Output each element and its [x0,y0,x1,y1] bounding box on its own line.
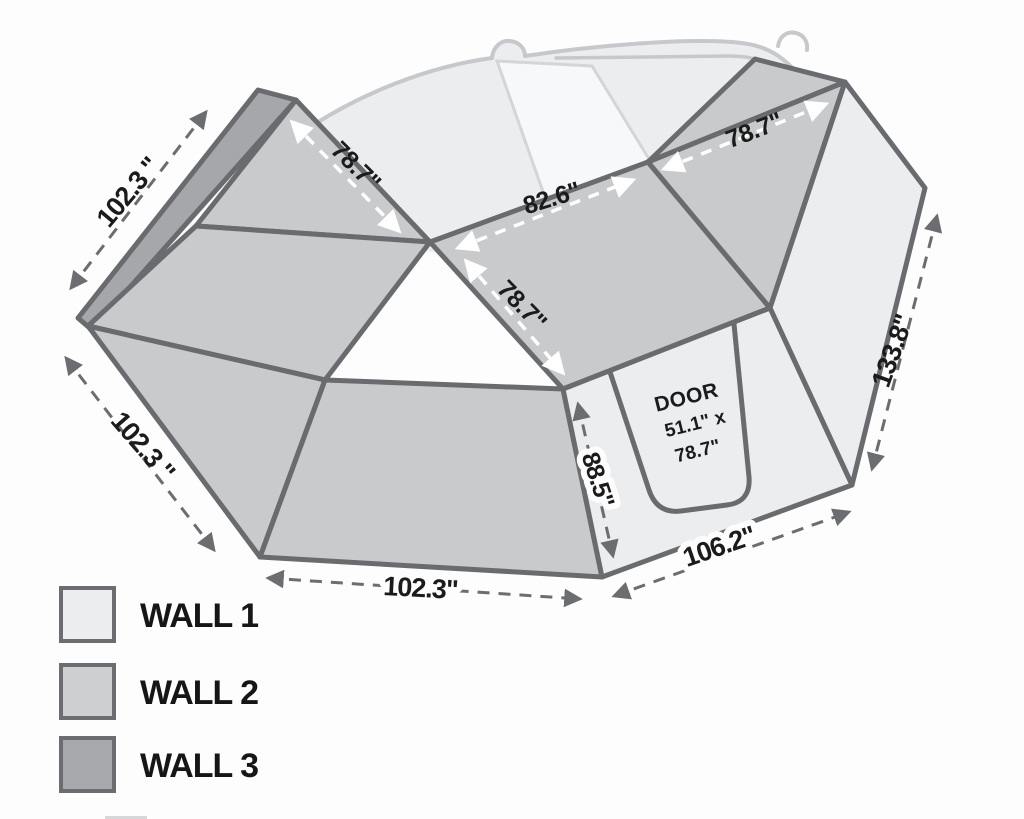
legend-swatch-wall1 [61,588,114,641]
rooftop-tent-latch [778,33,807,50]
diagram-canvas: 78.7" 82.6" 78.7" 78.7" 102.3 " 102.3 " … [0,0,1024,819]
legend-swatch-wall3 [61,738,114,791]
legend-swatch-wall2 [61,665,114,718]
legend: WALL 1 WALL 2 WALL 3 [61,588,258,819]
awning-dimension-diagram: 78.7" 82.6" 78.7" 78.7" 102.3 " 102.3 " … [0,0,1024,819]
legend-label-wall3: WALL 3 [140,747,258,785]
legend-label-wall1: WALL 1 [140,597,258,635]
legend-label-wall2: WALL 2 [140,674,258,712]
dim-bottom-label: 102.3" [383,571,459,605]
